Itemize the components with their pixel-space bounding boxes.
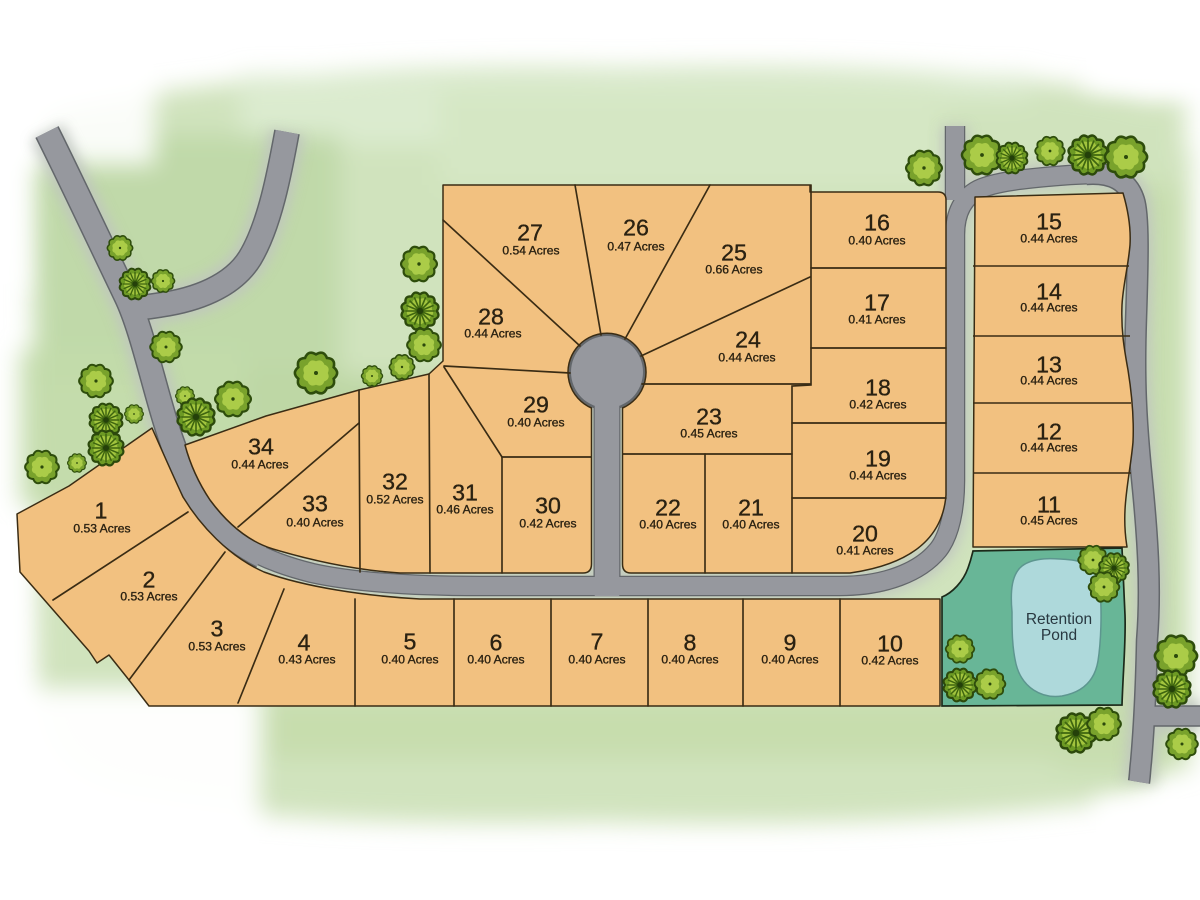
svg-text:0.44 Acres: 0.44 Acres <box>849 468 906 482</box>
svg-text:Pond: Pond <box>1041 627 1077 644</box>
svg-text:34: 34 <box>248 433 274 459</box>
svg-text:0.45 Acres: 0.45 Acres <box>1020 513 1077 527</box>
svg-text:0.52 Acres: 0.52 Acres <box>366 492 423 506</box>
svg-text:29: 29 <box>523 391 549 417</box>
svg-text:0.40 Acres: 0.40 Acres <box>568 652 625 666</box>
svg-text:0.44 Acres: 0.44 Acres <box>1020 373 1077 387</box>
svg-text:0.47 Acres: 0.47 Acres <box>607 239 664 253</box>
svg-text:0.42 Acres: 0.42 Acres <box>861 653 918 667</box>
svg-text:16: 16 <box>864 209 890 235</box>
svg-text:7: 7 <box>591 628 604 654</box>
svg-text:0.44 Acres: 0.44 Acres <box>231 457 288 471</box>
svg-text:0.40 Acres: 0.40 Acres <box>848 233 905 247</box>
svg-text:30: 30 <box>535 492 561 518</box>
svg-text:0.40 Acres: 0.40 Acres <box>761 652 818 666</box>
svg-text:0.44 Acres: 0.44 Acres <box>1020 440 1077 454</box>
svg-text:0.44 Acres: 0.44 Acres <box>718 350 775 364</box>
svg-text:5: 5 <box>404 628 417 654</box>
svg-text:0.40 Acres: 0.40 Acres <box>639 517 696 531</box>
svg-text:0.46 Acres: 0.46 Acres <box>436 502 493 516</box>
svg-text:0.44 Acres: 0.44 Acres <box>1020 300 1077 314</box>
svg-text:33: 33 <box>302 490 328 516</box>
svg-text:0.53 Acres: 0.53 Acres <box>73 521 130 535</box>
svg-text:0.54 Acres: 0.54 Acres <box>502 243 559 257</box>
svg-text:0.43 Acres: 0.43 Acres <box>278 652 335 666</box>
svg-text:0.40 Acres: 0.40 Acres <box>661 652 718 666</box>
svg-text:3: 3 <box>211 615 224 641</box>
svg-text:0.44 Acres: 0.44 Acres <box>1020 231 1077 245</box>
svg-text:32: 32 <box>382 468 408 494</box>
svg-text:0.42 Acres: 0.42 Acres <box>849 397 906 411</box>
svg-text:0.41 Acres: 0.41 Acres <box>836 543 893 557</box>
svg-text:0.40 Acres: 0.40 Acres <box>467 652 524 666</box>
svg-text:0.40 Acres: 0.40 Acres <box>722 517 779 531</box>
svg-text:0.41 Acres: 0.41 Acres <box>848 312 905 326</box>
svg-text:0.42 Acres: 0.42 Acres <box>519 516 576 530</box>
svg-text:26: 26 <box>623 214 649 240</box>
svg-text:0.45 Acres: 0.45 Acres <box>680 426 737 440</box>
svg-text:0.40 Acres: 0.40 Acres <box>381 652 438 666</box>
svg-text:0.44 Acres: 0.44 Acres <box>464 326 521 340</box>
svg-text:0.53 Acres: 0.53 Acres <box>188 639 245 653</box>
svg-text:0.40 Acres: 0.40 Acres <box>507 415 564 429</box>
svg-text:27: 27 <box>517 219 543 245</box>
svg-text:1: 1 <box>95 497 108 523</box>
svg-text:24: 24 <box>735 326 761 352</box>
svg-text:0.66 Acres: 0.66 Acres <box>705 262 762 276</box>
svg-text:0.40 Acres: 0.40 Acres <box>286 515 343 529</box>
svg-text:0.53 Acres: 0.53 Acres <box>120 589 177 603</box>
svg-text:Retention: Retention <box>1026 611 1092 628</box>
